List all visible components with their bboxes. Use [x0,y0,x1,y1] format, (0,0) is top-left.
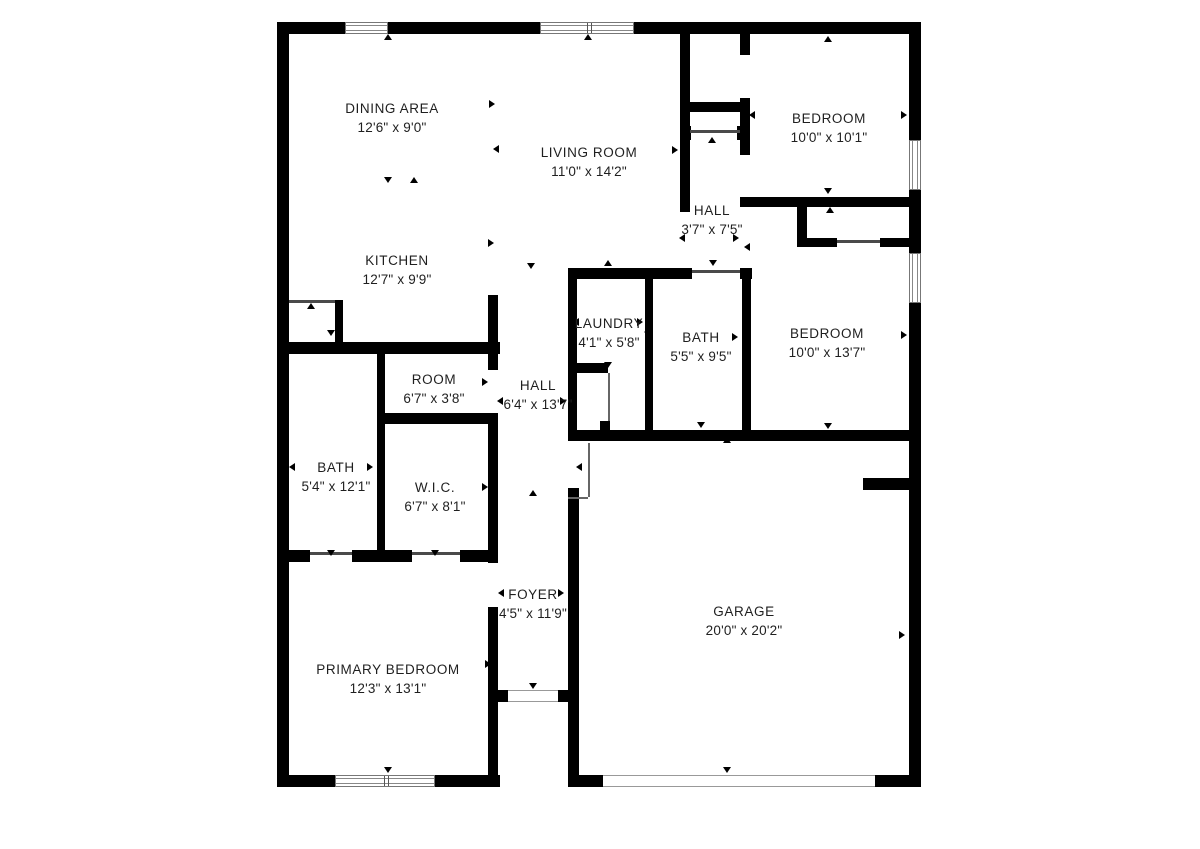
door-swing-line [588,443,590,497]
room-dimensions: 6'7" x 8'1" [404,497,465,516]
room-name: ROOM [403,370,464,389]
dimension-arrow [732,333,738,341]
wall-segment [568,268,692,279]
room-name: KITCHEN [363,251,432,270]
wall-segment [488,295,498,370]
dimension-arrow [280,660,286,668]
front-door-opening [508,690,558,702]
room-label-bedroom-2: BEDROOM10'0" x 13'7" [789,324,866,362]
wall-segment [797,238,837,247]
room-label-dining-area: DINING AREA12'6" x 9'0" [345,99,439,137]
dimension-arrow [430,342,438,348]
dimension-arrow [824,36,832,42]
window-divider [587,23,588,33]
dimension-arrow [826,207,834,213]
room-dimensions: 12'7" x 9'9" [363,270,432,289]
room-dimensions: 3'7" x 7'5" [681,220,742,239]
window-pane [336,778,434,784]
dimension-arrow [529,683,537,689]
wall-segment [680,34,690,212]
wall-segment [335,300,343,345]
dimension-arrow [744,243,750,251]
room-label-laundry: LAUNDRY4'1" x 5'8" [575,314,643,352]
wall-segment [909,303,921,787]
dimension-arrow [644,328,650,336]
room-label-bath-primary: BATH5'4" x 12'1" [302,458,371,496]
dimension-arrow [497,397,503,405]
room-name: LAUNDRY [575,314,643,333]
room-label-foyer: FOYER4'5" x 11'9" [499,585,567,623]
wall-segment [740,34,750,55]
wall-segment [634,22,921,34]
room-name: W.I.C. [404,478,465,497]
dimension-arrow [378,378,384,386]
room-label-primary-bedroom: PRIMARY BEDROOM12'3" x 13'1" [316,660,460,698]
window-divider [384,776,385,786]
dimension-arrow [572,629,578,637]
dimension-arrow [307,303,315,309]
room-dimensions: 6'4" x 13'7" [504,395,573,414]
wall-segment [488,424,498,563]
window-divider [388,776,389,786]
dimension-arrow [709,260,717,266]
door-line [690,130,740,133]
wall-segment [568,268,577,440]
wall-segment [568,430,921,441]
room-label-hall-upper: HALL3'7" x 7'5" [681,201,742,239]
dimension-arrow [743,331,749,339]
room-name: HALL [681,201,742,220]
window-pane [912,254,918,302]
wall-segment [435,775,500,787]
wall-segment [645,268,653,440]
dimension-arrow [279,239,285,247]
room-label-kitchen: KITCHEN12'7" x 9'9" [363,251,432,289]
wall-segment [277,775,335,787]
dimension-arrow [723,767,731,773]
wall-segment [289,550,310,562]
room-dimensions: 4'5" x 11'9" [499,604,567,623]
room-name: GARAGE [706,602,783,621]
dimension-arrow [723,437,731,443]
dimension-arrow [901,111,907,119]
dimension-arrow [576,463,582,471]
wall-segment [568,488,579,787]
wall-segment [277,22,345,34]
room-dimensions: 10'0" x 13'7" [789,343,866,362]
room-name: BATH [670,328,731,347]
room-label-living-room: LIVING ROOM11'0" x 14'2" [541,143,638,181]
door-swing-line [608,373,610,421]
wall-segment [863,478,909,490]
door-line [837,240,880,243]
dimension-arrow [697,422,705,428]
room-dimensions: 12'3" x 13'1" [316,679,460,698]
dimension-arrow [749,111,755,119]
window [335,775,435,787]
room-dimensions: 4'1" x 5'8" [575,333,643,352]
wall-segment [558,690,578,702]
wall-segment [740,197,921,207]
dimension-arrow [488,239,494,247]
window [345,22,388,34]
dimension-arrow [384,767,392,773]
window [540,22,634,34]
wall-segment [880,238,921,247]
room-name: BEDROOM [791,109,868,128]
room-label-wic: W.I.C.6'7" x 8'1" [404,478,465,516]
dimension-arrow [527,263,535,269]
dimension-arrow [899,631,905,639]
wall-segment [460,550,498,562]
room-name: FOYER [499,585,567,604]
dimension-arrow [584,34,592,40]
dimension-arrow [378,483,384,491]
door-line [692,270,740,273]
dimension-arrow [604,260,612,266]
dimension-arrow [708,137,716,143]
wall-segment [737,126,745,140]
room-dimensions: 11'0" x 14'2" [541,162,638,181]
room-label-bath-hall: BATH5'5" x 9'5" [670,328,731,366]
wall-segment [740,268,752,279]
room-dimensions: 5'5" x 9'5" [670,347,731,366]
window [909,140,921,190]
dimension-arrow [824,423,832,429]
wall-segment [377,550,412,562]
room-dimensions: 12'6" x 9'0" [345,118,439,137]
dimension-arrow [604,362,612,368]
room-name: BEDROOM [789,324,866,343]
dimension-arrow [672,146,678,154]
room-name: LIVING ROOM [541,143,638,162]
wall-segment [742,279,751,440]
room-label-garage: GARAGE20'0" x 20'2" [706,602,783,640]
room-dimensions: 20'0" x 20'2" [706,621,783,640]
room-name: HALL [504,376,573,395]
room-dimensions: 6'7" x 3'8" [403,389,464,408]
dimension-arrow [430,415,438,421]
dimension-arrow [482,378,488,386]
floor-plan-canvas: DINING AREA12'6" x 9'0"LIVING ROOM11'0" … [0,0,1200,849]
dimension-arrow [279,100,285,108]
wall-segment [875,775,921,787]
dimension-arrow [824,188,832,194]
dimension-arrow [901,331,907,339]
room-name: DINING AREA [345,99,439,118]
dimension-arrow [384,177,392,183]
garage-door-opening [603,775,875,787]
wall-segment [277,22,289,787]
dimension-arrow [327,550,335,556]
window-divider [591,23,592,33]
dimension-arrow [493,145,499,153]
wall-segment [497,690,508,702]
wall-segment [568,363,608,373]
room-label-bedroom-1: BEDROOM10'0" x 10'1" [791,109,868,147]
wall-segment [909,22,921,140]
window [909,253,921,303]
dimension-arrow [384,34,392,40]
door-swing-line [568,497,588,499]
room-dimensions: 10'0" x 10'1" [791,128,868,147]
dimension-arrow [384,556,392,562]
wall-segment [680,102,750,112]
wall-segment [277,342,500,354]
room-label-hall-main: HALL6'4" x 13'7" [504,376,573,414]
dimension-arrow [410,177,418,183]
window-pane [346,25,387,31]
room-label-room: ROOM6'7" x 3'8" [403,370,464,408]
wall-segment [352,550,378,562]
room-dimensions: 5'4" x 12'1" [302,477,371,496]
wall-segment [388,22,540,34]
dimension-arrow [489,100,495,108]
dimension-arrow [289,463,295,471]
dimension-arrow [431,550,439,556]
dimension-arrow [482,483,488,491]
dimension-arrow [529,490,537,496]
room-name: PRIMARY BEDROOM [316,660,460,679]
dimension-arrow [485,660,491,668]
window-pane [912,141,918,189]
room-name: BATH [302,458,371,477]
dimension-arrow [327,330,335,336]
